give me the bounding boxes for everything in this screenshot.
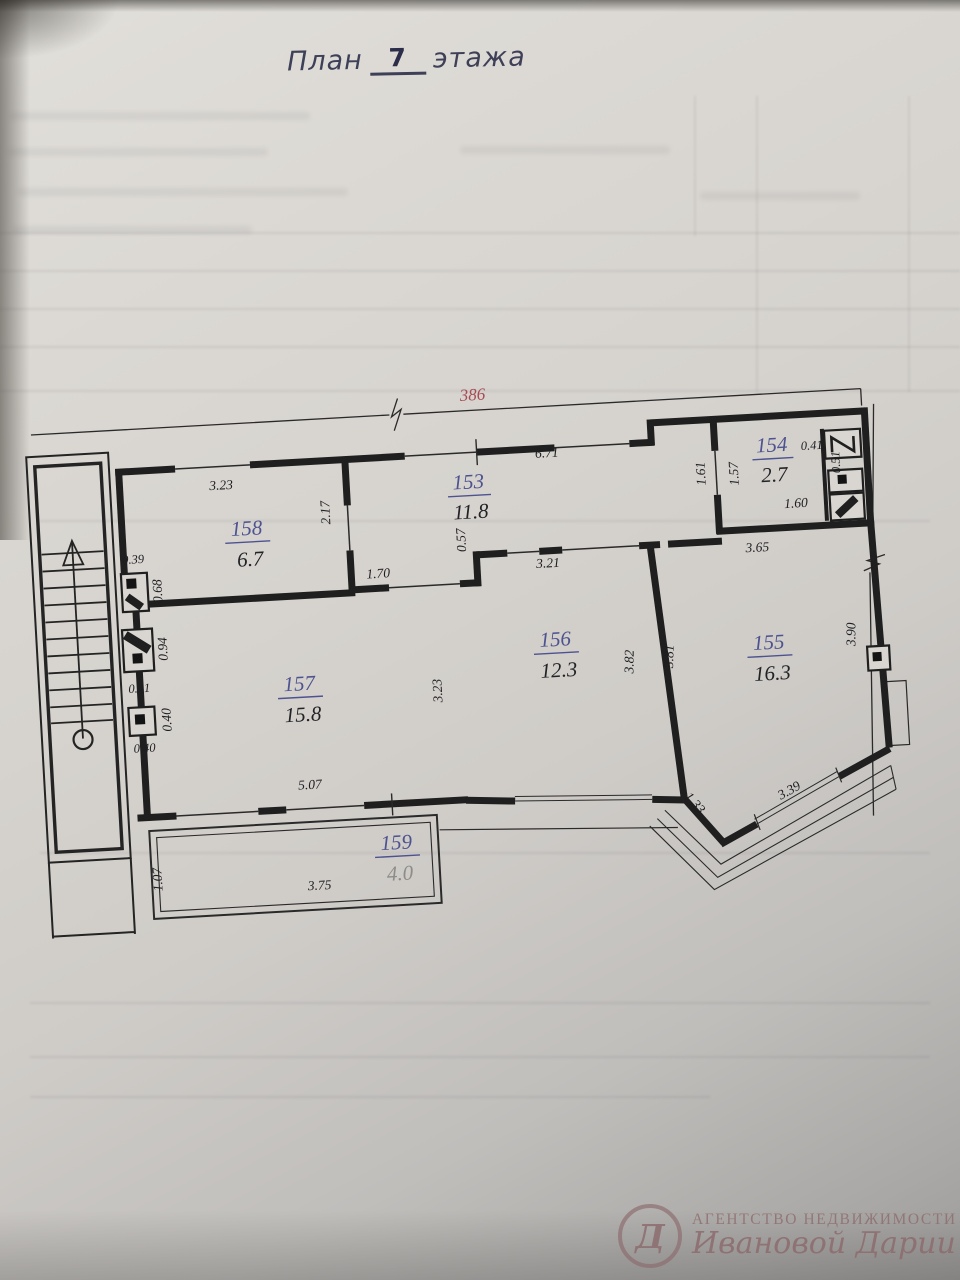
bleedthrough-line (0, 232, 960, 234)
dim-label: 0.40 (158, 707, 174, 732)
dim-label: 3.81 (661, 644, 677, 669)
dim-label: 0.51 (828, 451, 843, 474)
dim-label: 0.41 (800, 438, 823, 453)
stair-landing (49, 858, 135, 938)
floor-number-handwritten: 7 (388, 43, 407, 72)
bleedthrough-line (700, 192, 860, 200)
bleedthrough-line (0, 346, 960, 348)
agency-monogram: Д (635, 1217, 664, 1256)
dim-label: 1.61 (693, 461, 709, 485)
bleedthrough-line (460, 146, 670, 154)
dim-label: 3.75 (306, 877, 332, 893)
dim-label: 3.23 (429, 678, 445, 704)
floor-plan-svg: 386 153 11.8 154 2.7 155 16.3 156 12.3 1… (11, 344, 942, 971)
photo-edge-shadow (0, 0, 960, 12)
dim-label: 0.68 (149, 579, 165, 604)
dim-label: 0.94 (154, 637, 170, 662)
dim-label: 5.07 (298, 776, 324, 792)
room-number: 157 (283, 670, 317, 696)
floor-plan: 386 153 11.8 154 2.7 155 16.3 156 12.3 1… (11, 344, 942, 971)
dim-label: 3.90 (843, 622, 858, 647)
room-area: 11.8 (453, 499, 490, 525)
plan-title-prefix: План (287, 45, 363, 78)
dim-label: 3.65 (744, 539, 770, 555)
dim-label: 0.41 (128, 681, 151, 696)
bleedthrough-line (30, 1002, 930, 1004)
dim-label: 0.40 (133, 741, 156, 756)
dim-label: 1.57 (726, 460, 742, 486)
room-area: 15.8 (284, 701, 323, 727)
photo-edge-shadow (0, 0, 120, 60)
dim-label: 1.07 (149, 866, 165, 892)
room-number: 153 (452, 469, 485, 495)
room-area: 2.7 (761, 462, 790, 488)
room-labels: 153 11.8 154 2.7 155 16.3 156 12.3 157 1… (221, 432, 816, 894)
plan-title-suffix: этажа (432, 42, 526, 75)
room-area: 6.7 (236, 546, 265, 572)
annotation-number: 386 (458, 385, 486, 405)
dim-label: 1.60 (784, 495, 809, 511)
agency-line2: Ивановой Дарии (692, 1228, 957, 1260)
bleedthrough-line (8, 148, 268, 156)
bleedthrough-line (30, 1096, 710, 1098)
room-area: 12.3 (540, 657, 578, 683)
room-number: 159 (380, 829, 413, 855)
room-area: 4.0 (386, 860, 414, 885)
plan-title: План 7 этажа (287, 42, 526, 78)
dim-label: 0.39 (122, 552, 145, 567)
stair-steps (41, 539, 114, 740)
room-number: 156 (539, 626, 572, 652)
bleedthrough-line (30, 1056, 930, 1058)
agency-watermark: Д АГЕНТСТВО НЕДВИЖИМОСТИ Ивановой Дарии (618, 1204, 954, 1268)
dim-label: 3.23 (208, 477, 234, 493)
bleedthrough-line (10, 112, 310, 120)
dim-label: 3.21 (535, 555, 560, 571)
bleedthrough-line (0, 270, 960, 272)
bleedthrough-line (756, 96, 758, 392)
room-number: 158 (230, 515, 263, 541)
dim-label: 1.70 (366, 565, 391, 581)
break-mark (390, 398, 402, 431)
bleedthrough-line (18, 188, 348, 196)
dim-label: 0.57 (453, 527, 469, 553)
room-number: 155 (752, 629, 785, 655)
room-area: 16.3 (753, 660, 791, 686)
floor-number-blank: 7 (370, 47, 427, 75)
dim-label: 2.17 (317, 499, 333, 525)
agency-text: АГЕНТСТВО НЕДВИЖИМОСТИ Ивановой Дарии (692, 1212, 957, 1260)
dim-label: 6.71 (535, 445, 559, 461)
bleedthrough-line (0, 308, 960, 310)
bleedthrough-line (12, 226, 252, 234)
document-photo: План 7 этажа (0, 0, 960, 1280)
dim-label: 3.82 (621, 649, 636, 674)
bleedthrough-line (694, 96, 696, 236)
agency-logo: Д (618, 1204, 682, 1268)
room-number: 154 (755, 432, 788, 458)
